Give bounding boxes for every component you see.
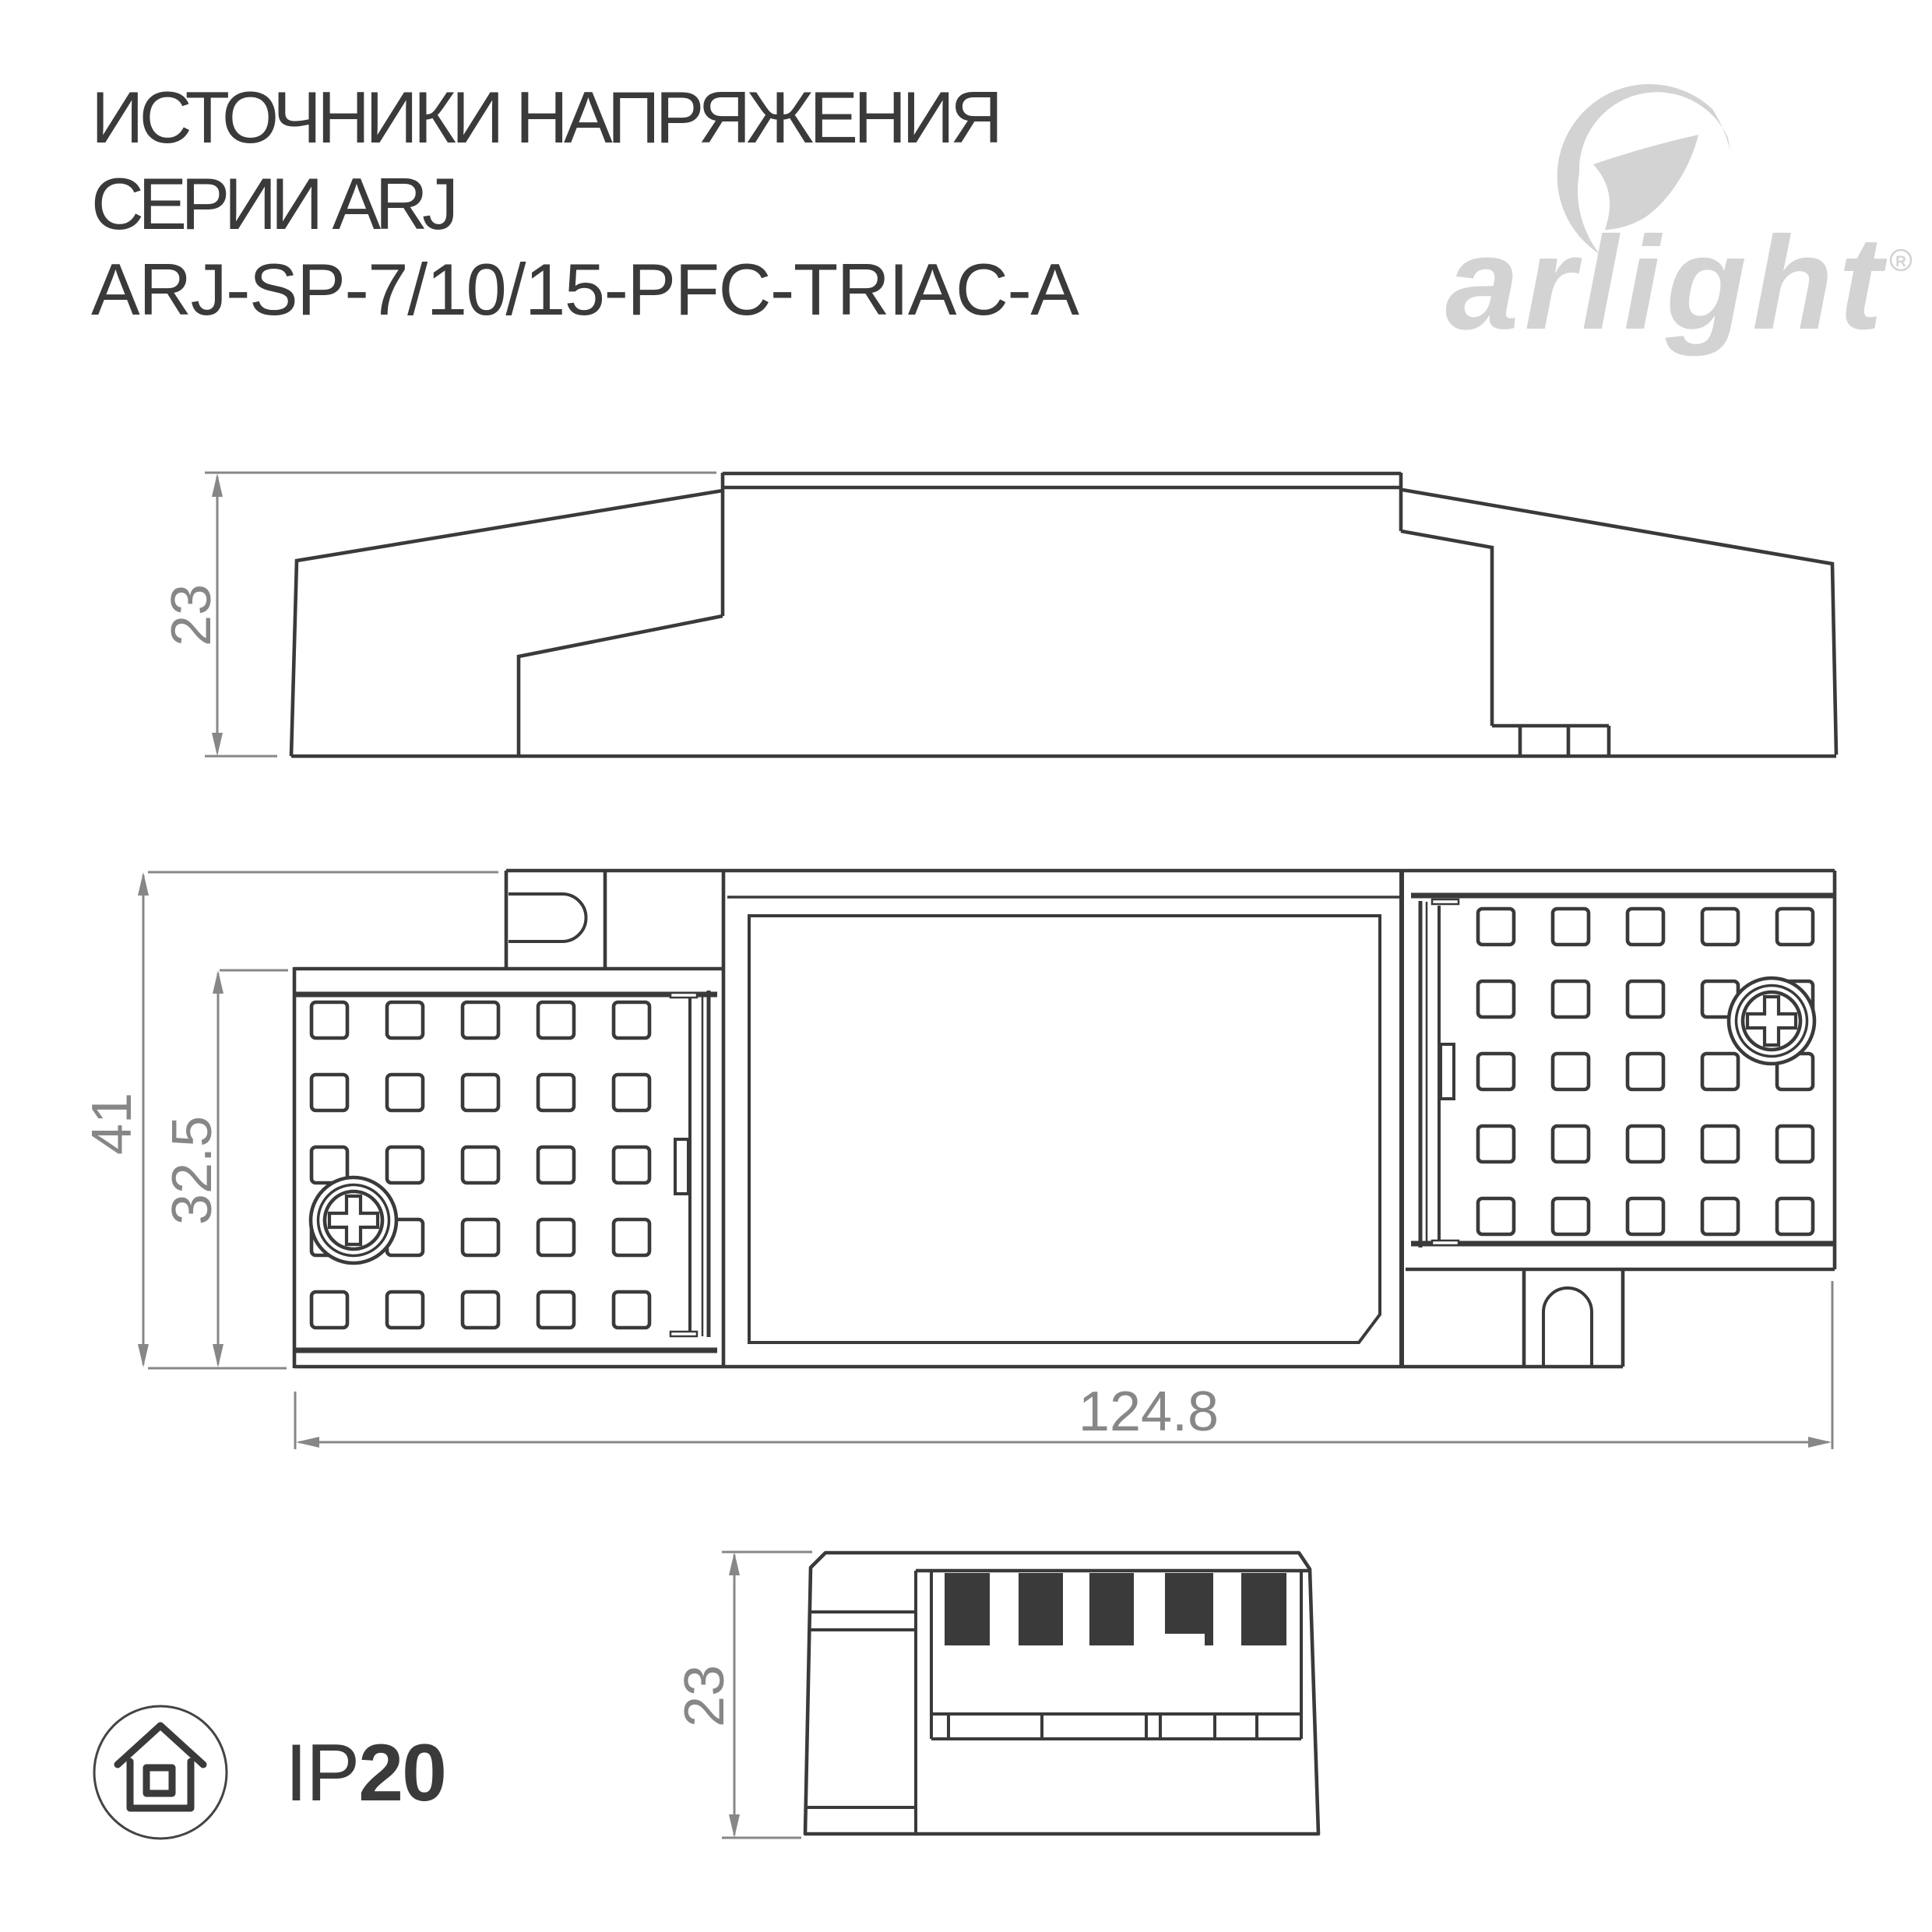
svg-text:23: 23	[160, 584, 223, 646]
svg-text:arlight: arlight	[1445, 209, 1888, 357]
svg-text:41: 41	[81, 1093, 143, 1155]
svg-text:32.5: 32.5	[161, 1116, 223, 1225]
svg-text:IP20: IP20	[285, 1728, 445, 1818]
svg-text:124.8: 124.8	[1079, 1381, 1219, 1443]
svg-text:ARJ-SP-7/10/15-PFC-TRIAC-A: ARJ-SP-7/10/15-PFC-TRIAC-A	[91, 248, 1079, 330]
svg-text:СЕРИИ ARJ: СЕРИИ ARJ	[91, 163, 459, 245]
svg-text:23: 23	[674, 1665, 736, 1727]
svg-text:R: R	[1895, 254, 1906, 270]
svg-text:ИСТОЧНИКИ НАПРЯЖЕНИЯ: ИСТОЧНИКИ НАПРЯЖЕНИЯ	[91, 76, 1003, 158]
